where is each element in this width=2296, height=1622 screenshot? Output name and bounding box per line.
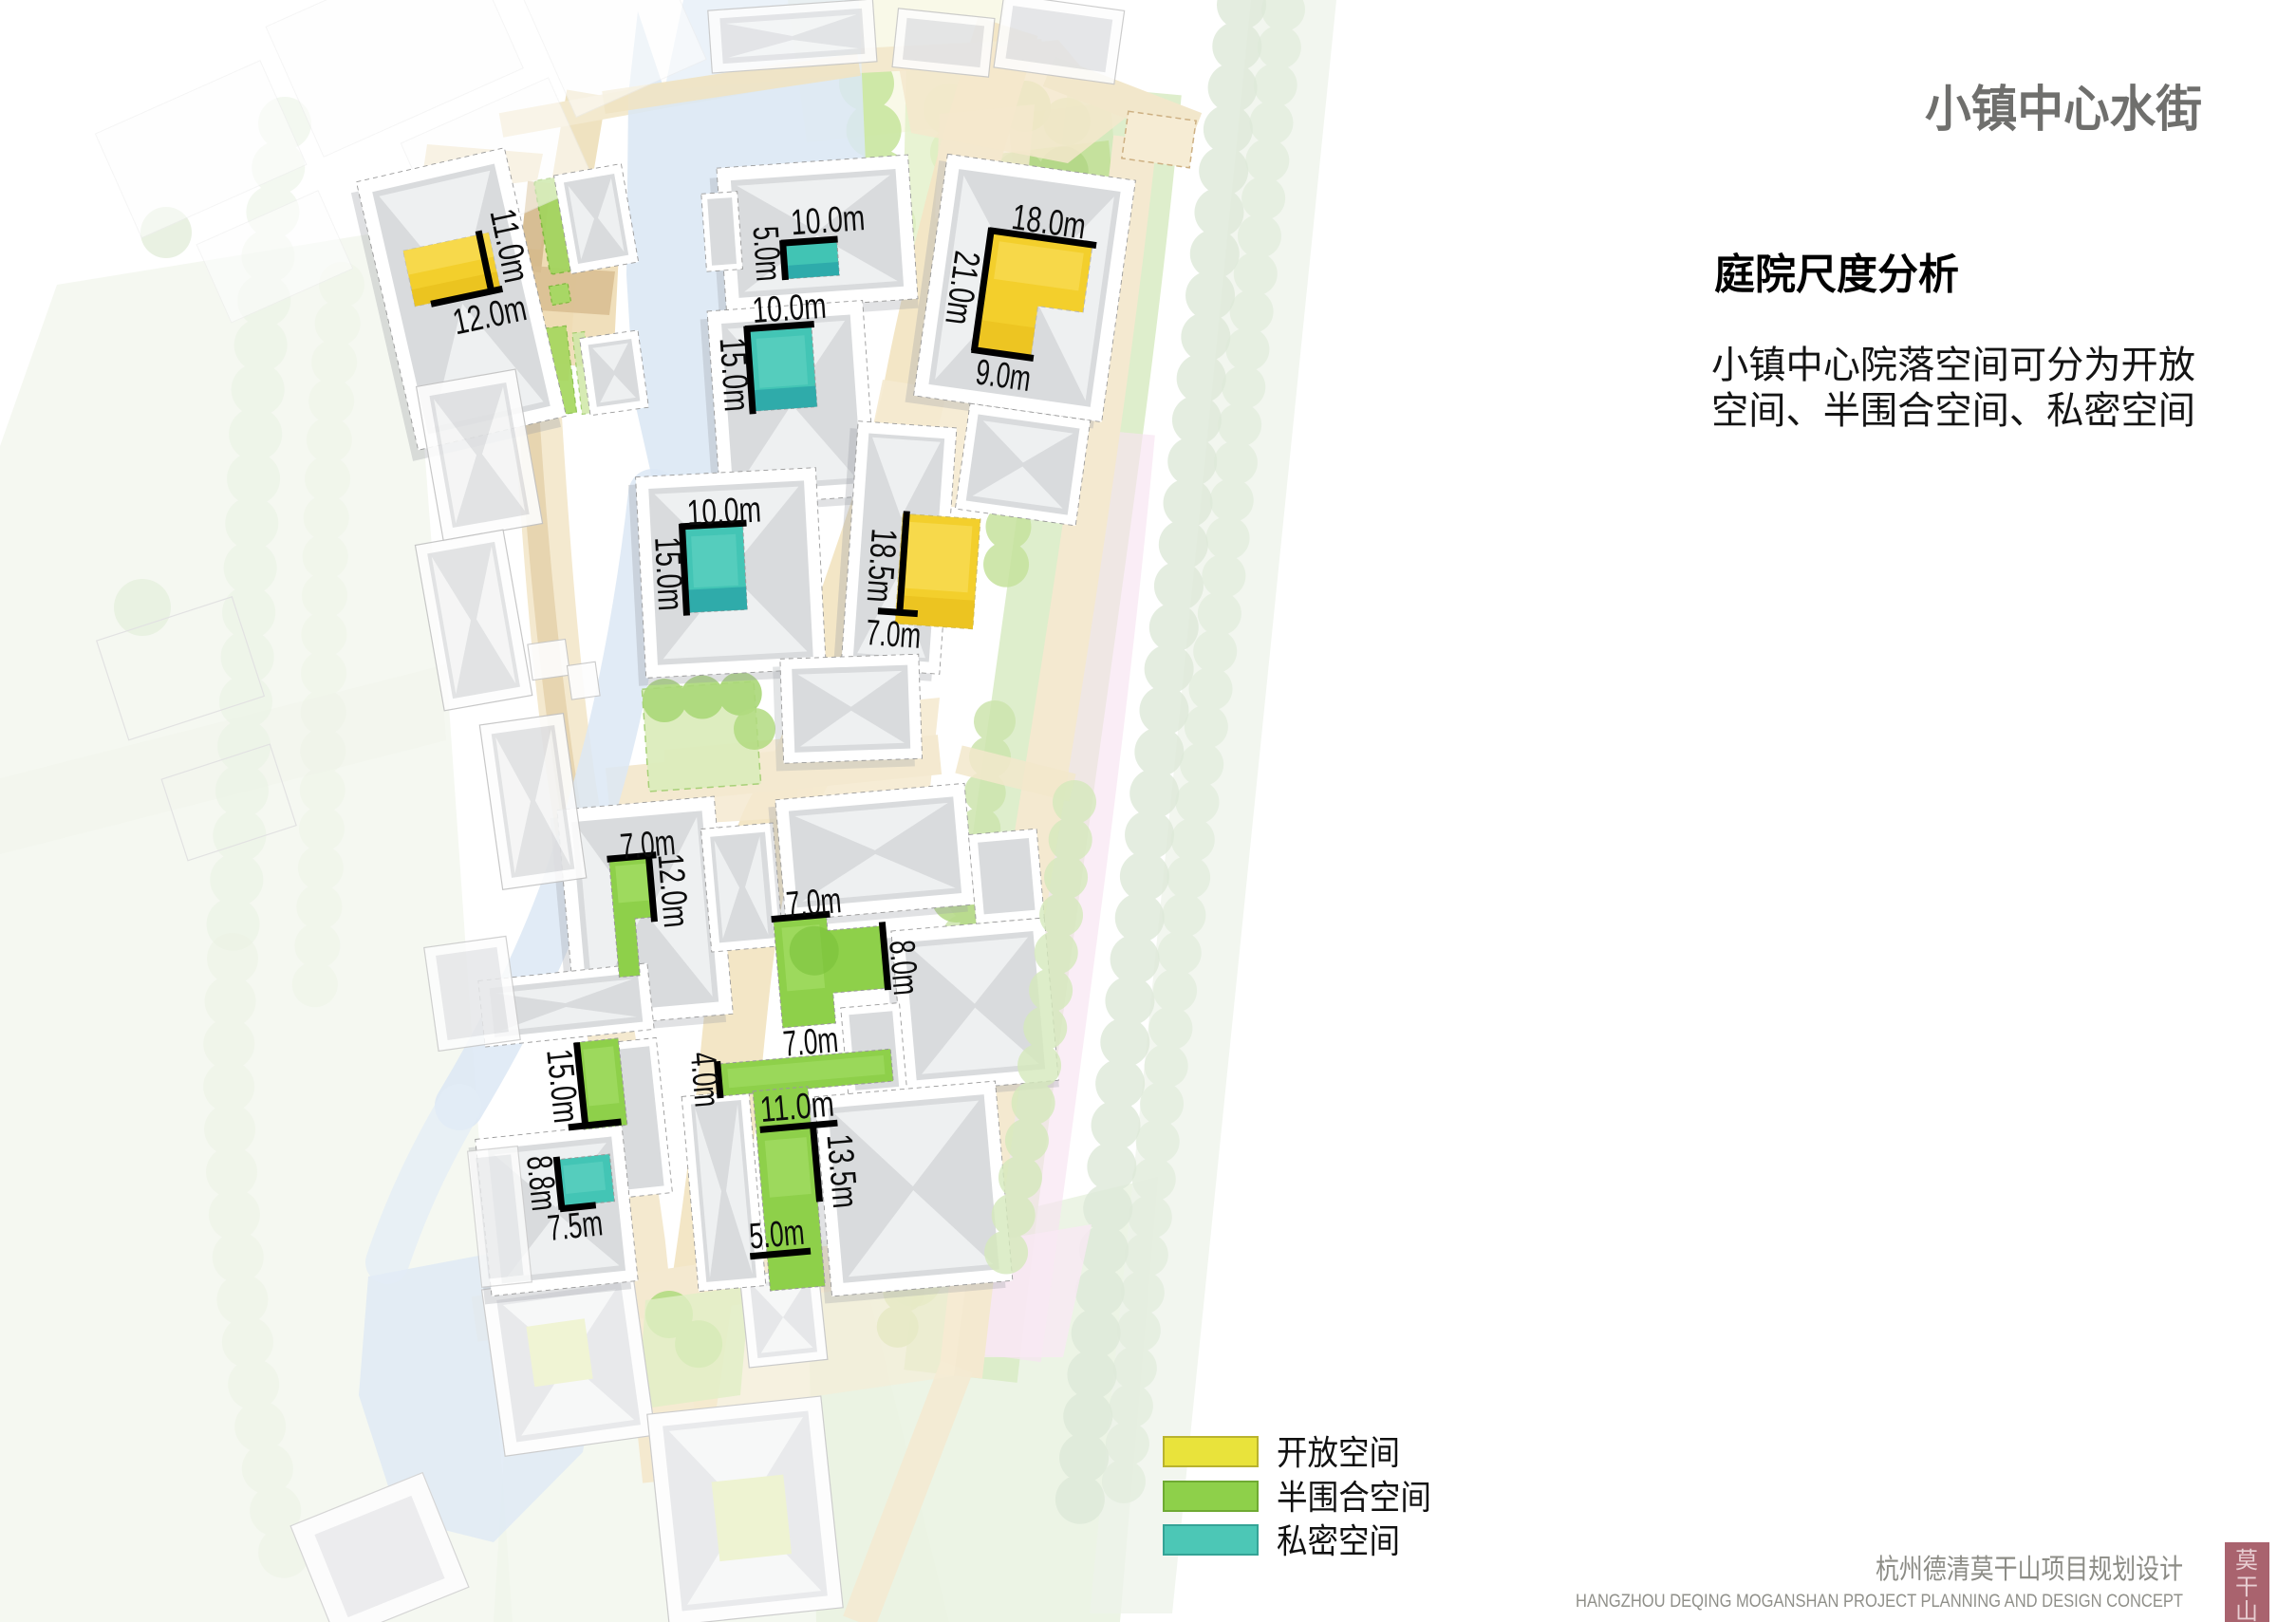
svg-text:4.0m: 4.0m <box>682 1051 727 1109</box>
svg-text:10.0m: 10.0m <box>686 490 762 533</box>
svg-text:8.8m: 8.8m <box>518 1154 564 1213</box>
svg-text:9.0m: 9.0m <box>973 352 1033 400</box>
svg-text:8.0m: 8.0m <box>881 939 925 997</box>
svg-text:15.0m: 15.0m <box>646 536 690 612</box>
svg-text:私密空间: 私密空间 <box>1277 1521 1400 1560</box>
svg-text:5.0m: 5.0m <box>744 225 788 283</box>
svg-text:7.5m: 7.5m <box>546 1203 605 1249</box>
svg-text:空间、半围合空间、私密空间: 空间、半围合空间、私密空间 <box>1711 390 2195 432</box>
svg-text:15.0m: 15.0m <box>712 336 756 413</box>
svg-text:庭院尺度分析: 庭院尺度分析 <box>1714 252 1959 298</box>
svg-text:7.0m: 7.0m <box>865 613 923 657</box>
svg-text:7.0m: 7.0m <box>785 881 843 925</box>
svg-text:15.0m: 15.0m <box>538 1047 586 1125</box>
svg-text:干: 干 <box>2235 1575 2258 1600</box>
svg-text:杭州德清莫干山项目规划设计: 杭州德清莫干山项目规划设计 <box>1876 1554 2183 1585</box>
svg-text:18.5m: 18.5m <box>859 527 904 604</box>
svg-text:开放空间: 开放空间 <box>1277 1433 1400 1472</box>
svg-text:10.0m: 10.0m <box>751 287 828 331</box>
svg-text:HANGZHOU DEQING MOGANSHAN PROJ: HANGZHOU DEQING MOGANSHAN PROJECT PLANNI… <box>1576 1591 2183 1612</box>
svg-text:半围合空间: 半围合空间 <box>1277 1478 1431 1517</box>
svg-text:12.0m: 12.0m <box>649 852 696 929</box>
svg-text:13.5m: 13.5m <box>818 1132 865 1209</box>
svg-text:小镇中心院落空间可分为开放: 小镇中心院落空间可分为开放 <box>1711 345 2195 386</box>
svg-text:山: 山 <box>2235 1599 2258 1622</box>
svg-text:11.0m: 11.0m <box>758 1085 835 1131</box>
svg-text:小镇中心水街: 小镇中心水街 <box>1925 83 2202 138</box>
svg-text:10.0m: 10.0m <box>790 198 867 243</box>
svg-text:莫: 莫 <box>2235 1548 2258 1574</box>
svg-text:5.0m: 5.0m <box>748 1213 806 1258</box>
